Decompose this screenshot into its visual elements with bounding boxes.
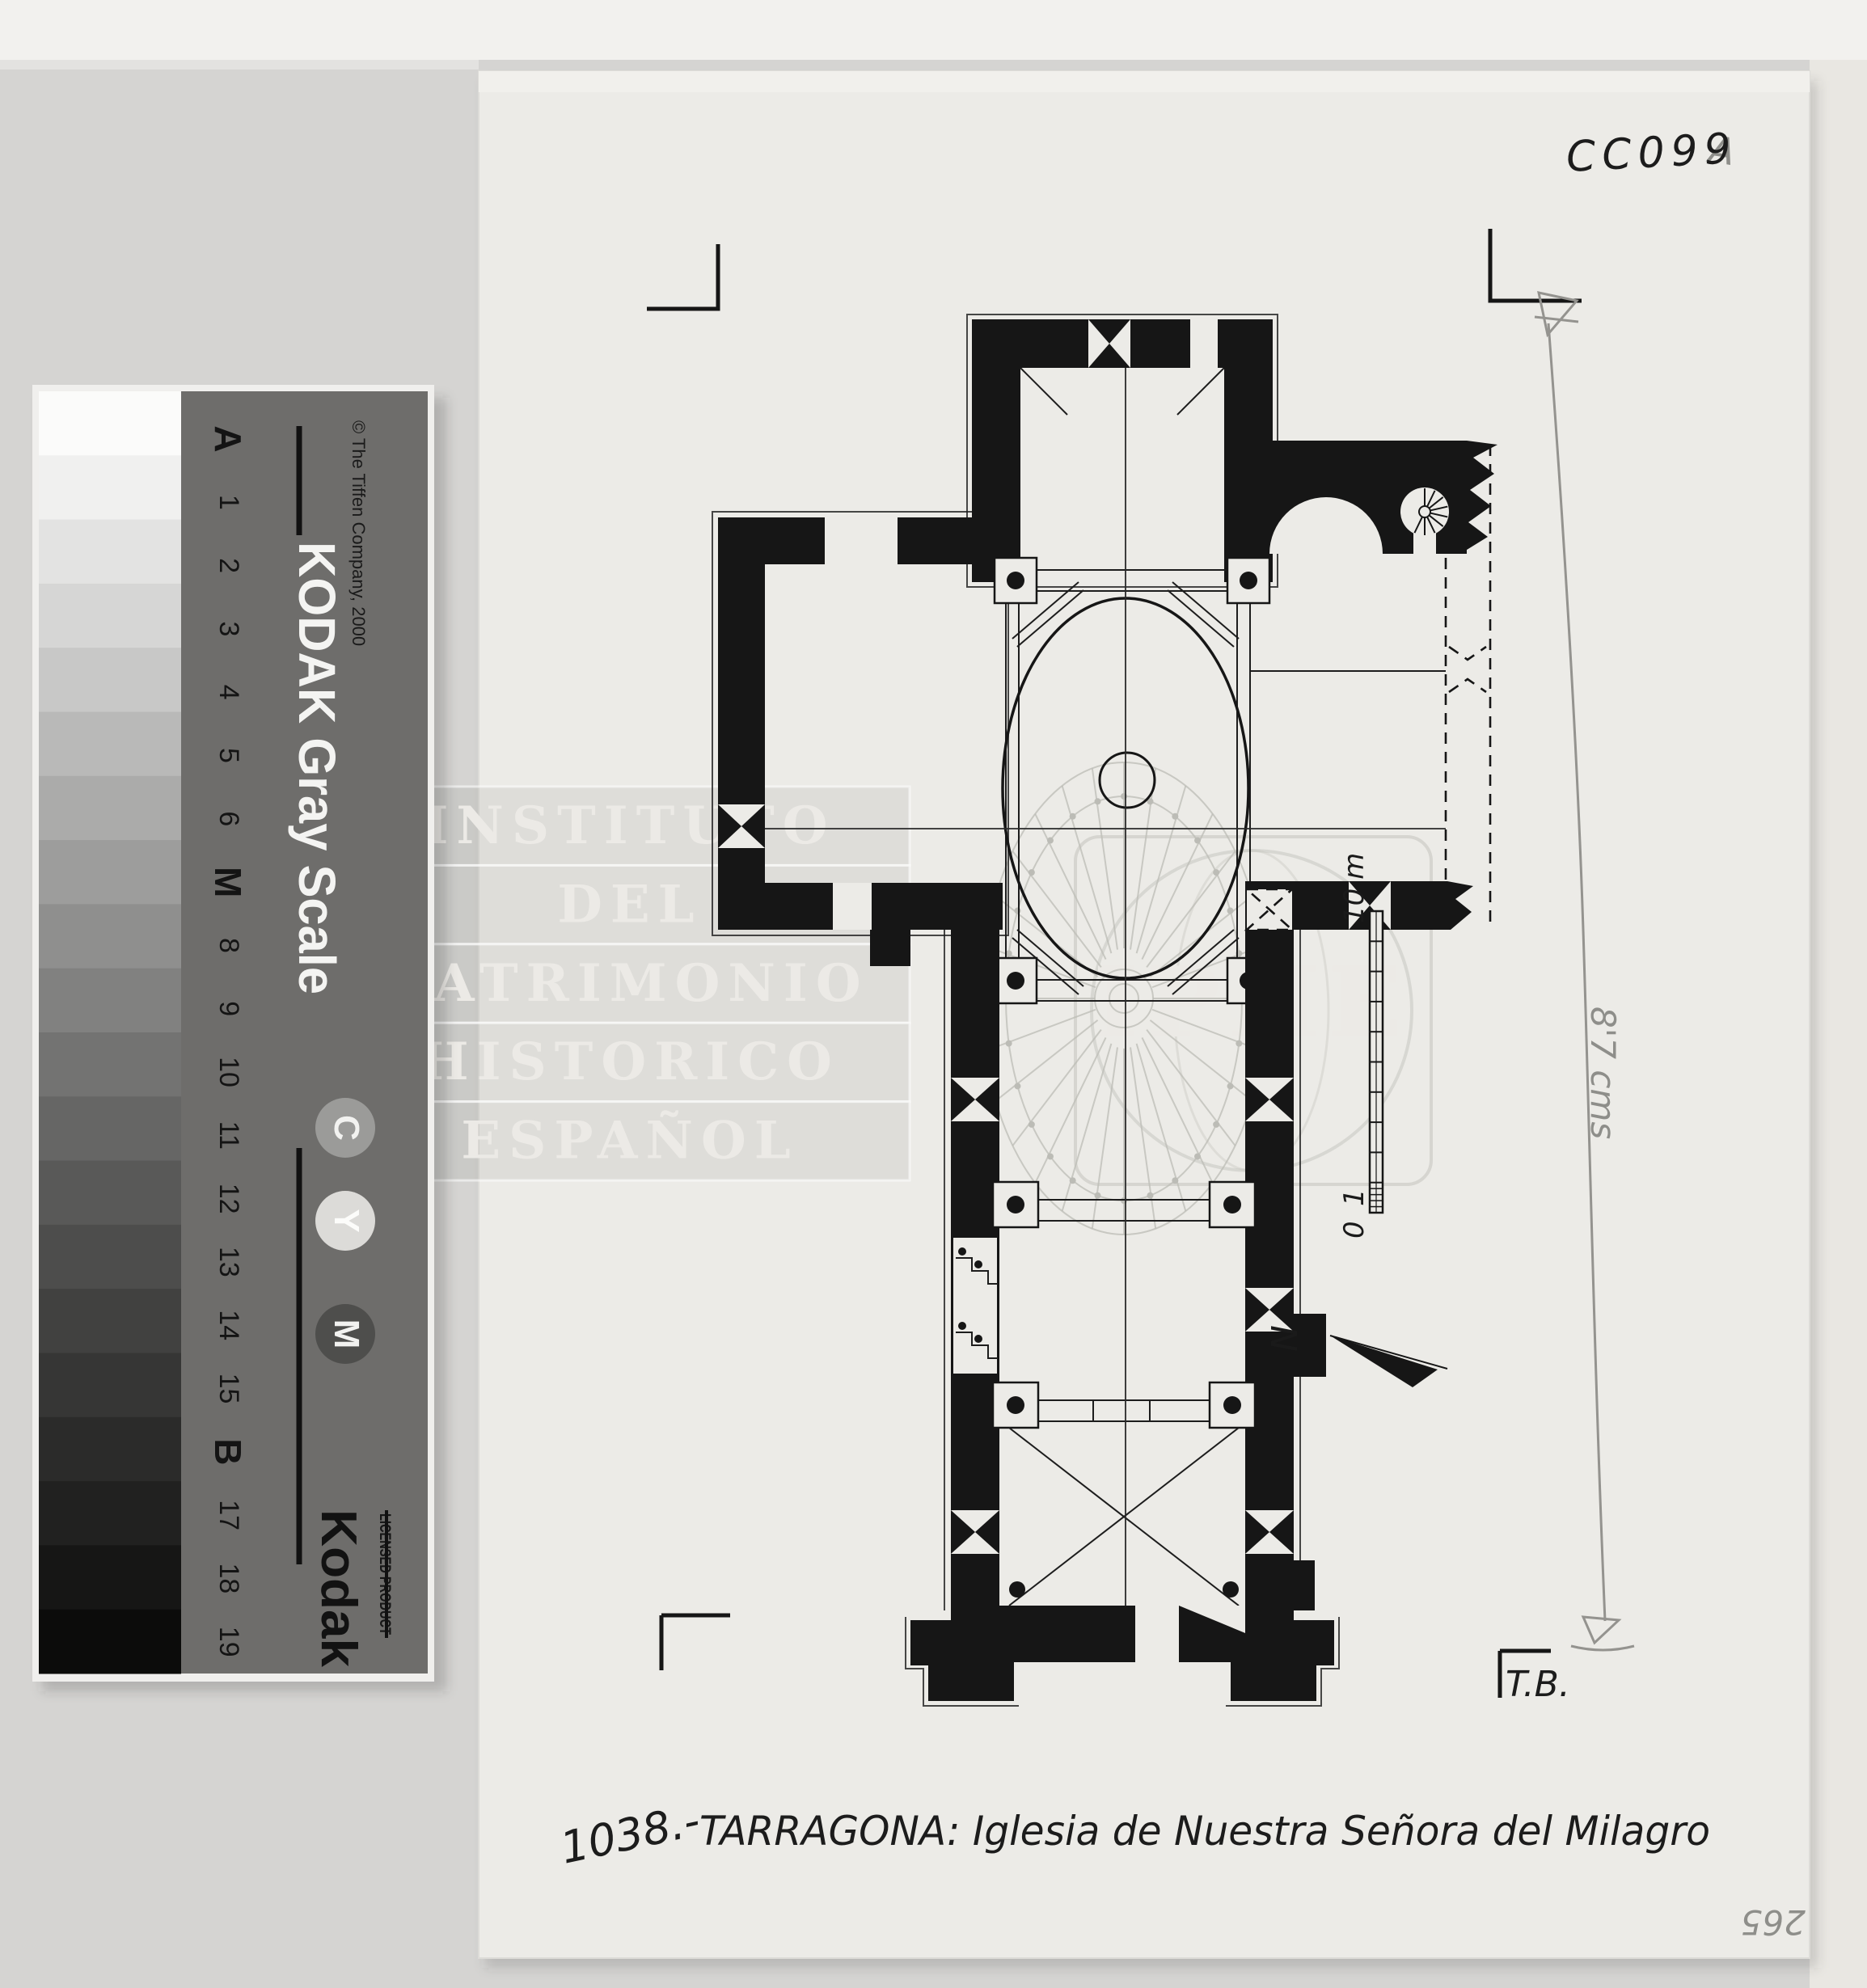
garland-dot [1172,813,1178,820]
entrance-door-gap [1135,1606,1179,1662]
ruler-step-label: 13 [213,1247,244,1277]
ruler-step-label: 18 [213,1563,244,1593]
watermark-stamp-line: INSTITUTO [424,796,835,856]
scan-bed-seam [0,60,479,70]
ruler-step-label: 3 [213,621,244,636]
kodak-brand: Kodak [310,1509,366,1668]
garland-dot [1095,798,1101,804]
garland-dot [1194,1153,1201,1159]
gray-patch [39,584,181,648]
ruler-step-label: 10 [213,1057,244,1087]
ruler-step-label: 5 [213,748,244,763]
caption-title: TARRAGONA: Iglesia de Nuestra Señora del… [699,1808,1710,1855]
gray-patch [39,1417,181,1482]
yellow-label: Y [327,1209,366,1232]
cym-patches: C Y M [315,1098,375,1364]
garland-dot [1047,838,1054,844]
gray-patch [39,455,181,520]
garland-dot [1213,1121,1219,1128]
ruler-step-label: 15 [213,1374,244,1404]
garland-dot [1194,838,1201,844]
scan-bed-top-strip [0,0,1867,60]
ruler-step-label: A [207,425,249,452]
garland-dot [1070,1177,1076,1184]
scanned-archive-photograph: IPHE INSTITUTODELPATRIMONIOHISTORICOESPA… [0,0,1867,1988]
watermark-stamp-line: HISTORICO [420,1032,840,1092]
ruler-step-label: 8 [213,938,244,953]
ruler-step-label: 19 [213,1627,244,1657]
magenta-label: M [327,1319,366,1349]
stair-alcove [953,1237,998,1374]
ruler-title: KODAK Gray Scale [288,542,346,994]
ruler-step-label: 9 [213,1001,244,1016]
garland-dot [1047,1153,1054,1159]
gray-patch [39,1032,181,1097]
gray-patch [39,520,181,585]
gray-patch [39,391,181,456]
garland-dot [1014,1083,1020,1089]
ruler-step-label: 12 [213,1184,244,1214]
gray-patch [39,648,181,712]
garland-dot [1014,908,1020,914]
scale-label-10m: 10 m [1338,853,1371,923]
ruler-step-label: 1 [213,495,244,510]
ruler-step-label: 2 [213,558,244,573]
wall-gap [833,883,872,930]
archive-code: CC099 [1565,125,1739,182]
watermark-stamp-line: DEL [557,874,702,935]
gray-patch [39,776,181,841]
wall-gap [825,517,898,564]
ruler-step-label: 11 [213,1121,244,1150]
buttress [1294,1560,1315,1610]
garland-dot [1095,1192,1101,1199]
garland-dot [1029,869,1035,876]
scale-label-1: 1 [1338,1188,1371,1206]
gray-patch [39,969,181,1033]
gray-patch [39,840,181,905]
gray-patch [39,1096,181,1161]
gray-patch [39,1289,181,1353]
ruler-step-label: 4 [213,685,244,700]
gray-patch [39,1610,181,1674]
gray-patch [39,1545,181,1610]
scan-bed-right-strip [1810,60,1867,1988]
garland-dot [1172,1177,1178,1184]
pencil-note: 8'7 cms [1583,1007,1623,1139]
kodak-brand-subtitle: LICENSED PRODUCT [376,1513,393,1635]
ruler-step-label: 14 [213,1310,244,1340]
watermark-stamp-line: ESPAÑOL [461,1110,798,1171]
scale-label-0: 0 [1338,1221,1371,1239]
garland-dot [1029,1121,1035,1128]
watermark-stamp-line: PATRIMONIO [391,953,868,1014]
cyan-label: C [327,1115,366,1141]
page-number: 265 [1741,1902,1806,1942]
ruler-step-label: M [207,867,249,897]
buttress [870,930,910,966]
garland-dot [1006,1040,1012,1047]
gray-patch [39,1161,181,1226]
sheet-top-fold [479,71,1810,92]
garland-dot [1227,1083,1234,1089]
photographer-initials: T.B. [1506,1664,1570,1705]
garland-dot [1227,908,1234,914]
garland-dot [1213,869,1219,876]
garland-dot [1236,1040,1242,1047]
gray-patches [39,391,181,1674]
gray-patch [39,1481,181,1546]
gray-patch [39,904,181,969]
gray-patch [39,1353,181,1418]
tower-notch [1190,319,1218,368]
garland-dot [1070,813,1076,820]
garland-dot [1147,1192,1153,1199]
gray-patch [39,712,181,777]
ruler-copyright: © The Tiffen Company, 2000 [348,420,369,646]
ruler-step-label: 17 [213,1500,244,1530]
kodak-gray-scale-ruler: A123456M89101112131415B171819 KODAK Gray… [32,385,446,1691]
north-label: N [1265,1325,1306,1352]
ruler-step-label: B [207,1438,249,1465]
ruler-step-label: 6 [213,811,244,826]
gray-patch [39,1225,181,1289]
